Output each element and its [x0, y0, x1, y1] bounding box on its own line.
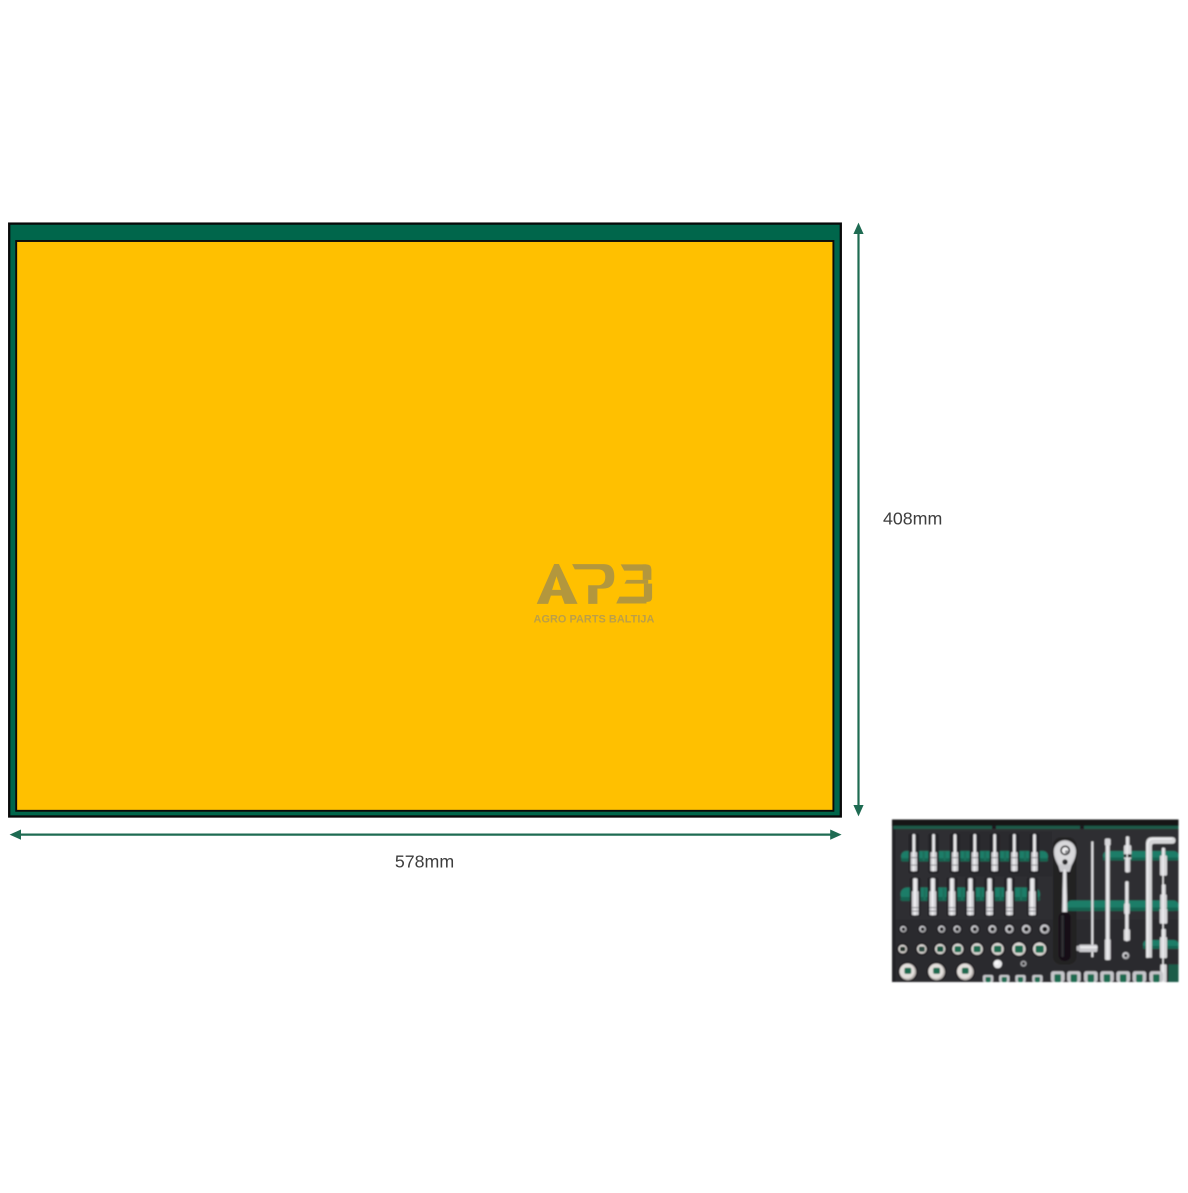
svg-text:AGRO PARTS BALTIJA: AGRO PARTS BALTIJA: [534, 614, 655, 626]
svg-text:408mm: 408mm: [883, 509, 942, 529]
svg-text:578mm: 578mm: [395, 852, 454, 872]
